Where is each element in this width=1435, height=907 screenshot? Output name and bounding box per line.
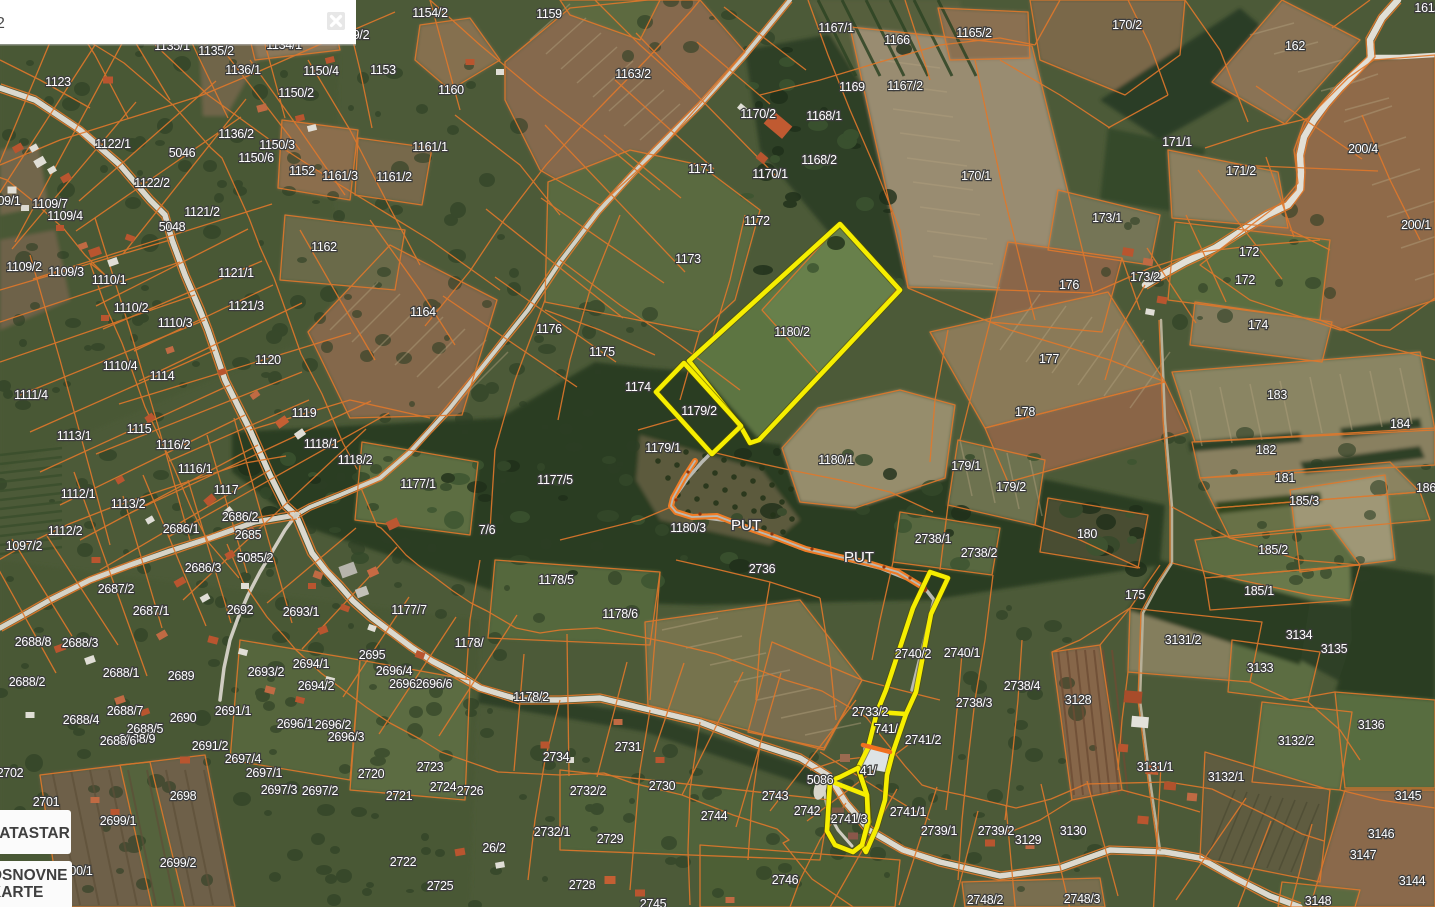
svg-text:1115: 1115 [127,422,152,436]
svg-text:1150/3: 1150/3 [259,138,295,152]
svg-text:1122/2: 1122/2 [134,176,170,190]
svg-text:172: 172 [1239,245,1259,259]
svg-text:3148: 3148 [1305,894,1332,907]
svg-text:2724: 2724 [430,780,457,794]
svg-text:1114: 1114 [150,369,175,383]
svg-text:2698: 2698 [170,789,197,803]
svg-text:2688/8: 2688/8 [15,635,52,649]
svg-text:170/1: 170/1 [961,169,991,183]
svg-text:1123: 1123 [45,75,71,89]
svg-text:2695: 2695 [359,648,386,662]
svg-text:2734: 2734 [543,750,570,764]
svg-text:2699/1: 2699/1 [100,814,137,828]
svg-text:1165/2: 1165/2 [956,26,992,40]
svg-text:09/1: 09/1 [0,194,21,208]
svg-text:2688/4: 2688/4 [63,713,100,727]
svg-text:2686/3: 2686/3 [185,561,222,575]
svg-text:1162: 1162 [311,240,337,254]
svg-text:2732/2: 2732/2 [570,784,607,798]
svg-text:2721: 2721 [386,789,413,803]
svg-text:1116/2: 1116/2 [156,438,191,452]
svg-text:184: 184 [1390,417,1410,431]
svg-text:171/2: 171/2 [1226,164,1256,178]
svg-text:1164: 1164 [410,305,436,319]
svg-text:2686/1: 2686/1 [163,522,200,536]
svg-text:180: 180 [1077,527,1097,541]
svg-text:2732/1: 2732/1 [534,825,571,839]
svg-text:2723: 2723 [417,760,444,774]
svg-text:KARTE: KARTE [0,884,43,901]
svg-text:182: 182 [1256,443,1276,457]
svg-text:1109/2: 1109/2 [6,260,42,274]
svg-text:2688/1: 2688/1 [103,666,140,680]
svg-text:1168/1: 1168/1 [806,109,842,123]
svg-text:3131/2: 3131/2 [1165,633,1202,647]
svg-text:1118/2: 1118/2 [338,453,373,467]
svg-text:2702: 2702 [0,766,24,780]
svg-text:1171: 1171 [688,162,714,176]
svg-text:1180/1: 1180/1 [818,453,854,467]
svg-text:1110/1: 1110/1 [92,273,127,287]
svg-text:1167/1: 1167/1 [818,21,854,35]
svg-text:171/1: 171/1 [1162,135,1192,149]
svg-text:1150/2: 1150/2 [278,86,314,100]
svg-text:2685: 2685 [235,528,262,542]
svg-text:2741/2: 2741/2 [905,733,942,747]
svg-text:179/1: 179/1 [951,459,981,473]
svg-text:5046: 5046 [169,146,196,160]
svg-text:2691/2: 2691/2 [192,739,229,753]
svg-text:1110/3: 1110/3 [158,316,193,330]
svg-text:OSNOVNE: OSNOVNE [0,867,68,884]
svg-text:2745: 2745 [640,897,667,907]
svg-text:2738/4: 2738/4 [1004,679,1041,693]
svg-text:2725: 2725 [427,879,454,893]
svg-text:2696/4: 2696/4 [376,664,413,678]
svg-text:1175: 1175 [589,345,615,359]
svg-text:1172: 1172 [744,214,770,228]
svg-text:2746: 2746 [772,873,799,887]
svg-text:2688/3: 2688/3 [62,636,99,650]
svg-text:2701: 2701 [33,795,60,809]
svg-text:1153: 1153 [370,63,396,77]
svg-text:179/2: 179/2 [996,480,1026,494]
svg-text:2692: 2692 [227,603,254,617]
svg-text:2697/1: 2697/1 [246,766,283,780]
svg-text:26/2: 26/2 [482,841,505,855]
svg-text:1178/6: 1178/6 [602,607,638,621]
svg-text:1169: 1169 [839,80,865,94]
svg-text:2690: 2690 [170,711,197,725]
svg-text:1176: 1176 [536,322,562,336]
svg-text:1178/: 1178/ [455,636,485,650]
svg-text:1116/1: 1116/1 [178,462,213,476]
svg-text:2742: 2742 [794,804,821,818]
svg-text:176: 176 [1059,278,1079,292]
svg-text:185/3: 185/3 [1289,494,1319,508]
svg-text:1174: 1174 [625,380,651,394]
svg-text:5085/2: 5085/2 [237,551,274,565]
svg-text:173/1: 173/1 [1092,211,1122,225]
svg-text:3136: 3136 [1358,718,1385,732]
svg-text:1097/2: 1097/2 [6,539,43,553]
svg-text:2691/1: 2691/1 [215,704,252,718]
svg-text:2738/2: 2738/2 [961,546,998,560]
svg-text:5048: 5048 [159,220,186,234]
svg-text:3131/1: 3131/1 [1137,760,1174,774]
svg-text:3132/2: 3132/2 [1278,734,1315,748]
svg-text:2699/2: 2699/2 [160,856,197,870]
svg-text:3130: 3130 [1060,824,1087,838]
svg-text:1112/1: 1112/1 [61,487,96,501]
svg-text:5086: 5086 [807,773,834,787]
svg-text:172: 172 [1235,273,1255,287]
svg-text:2728: 2728 [569,878,596,892]
svg-text:2697/4: 2697/4 [225,752,262,766]
svg-text:174: 174 [1248,318,1268,332]
svg-text:1170/1: 1170/1 [752,167,788,181]
svg-text:2688/7: 2688/7 [107,704,144,718]
svg-text:178: 178 [1015,405,1035,419]
svg-text:1109/4: 1109/4 [47,209,83,223]
svg-text:1121/3: 1121/3 [228,299,264,313]
svg-text:1179/2: 1179/2 [681,404,717,418]
svg-text:2743: 2743 [762,789,789,803]
svg-text:1173: 1173 [675,252,701,266]
svg-text:2697/2: 2697/2 [302,784,339,798]
svg-text:2733/2: 2733/2 [852,705,889,719]
svg-text:1168/2: 1168/2 [801,153,837,167]
svg-text:2689: 2689 [168,669,195,683]
svg-text:2729: 2729 [597,832,624,846]
svg-text:186: 186 [1416,481,1435,495]
svg-text:1113/1: 1113/1 [57,429,92,443]
svg-text:1161/3: 1161/3 [322,169,358,183]
svg-text:1121/1: 1121/1 [218,266,254,280]
svg-text:2722: 2722 [390,855,417,869]
svg-text:1161/1: 1161/1 [412,140,448,154]
svg-text:183: 183 [1267,388,1287,402]
svg-text:1178/5: 1178/5 [538,573,574,587]
svg-text:1159: 1159 [536,7,562,21]
svg-text:1152: 1152 [289,164,315,178]
svg-text:2744: 2744 [701,809,728,823]
svg-text:1122/1: 1122/1 [95,137,131,151]
svg-text:1161/2: 1161/2 [376,170,412,184]
svg-text:1179/1: 1179/1 [645,441,681,455]
svg-text:2726: 2726 [457,784,484,798]
svg-text:2738/1: 2738/1 [915,532,952,546]
svg-text:2696/3: 2696/3 [328,730,365,744]
svg-text:741/: 741/ [874,722,898,736]
svg-text:1163/2: 1163/2 [615,67,651,81]
svg-text:PUT: PUT [731,517,761,534]
svg-text:2738/3: 2738/3 [956,696,993,710]
svg-text:2688/6: 2688/6 [100,734,137,748]
svg-text:1112/2: 1112/2 [48,524,83,538]
svg-text:2696/6: 2696/6 [416,677,453,691]
svg-text:2694/2: 2694/2 [298,679,335,693]
svg-text:1150/6: 1150/6 [238,151,274,165]
svg-text:185/1: 185/1 [1244,584,1274,598]
svg-text:200/4: 200/4 [1348,142,1378,156]
svg-text:2687/2: 2687/2 [98,582,135,596]
svg-text:200/1: 200/1 [1401,218,1431,232]
svg-text:170/2: 170/2 [1112,18,1142,32]
svg-text:3129: 3129 [1015,833,1042,847]
svg-text:1180/3: 1180/3 [670,521,706,535]
svg-text:1136/1: 1136/1 [225,63,261,77]
svg-text:1117: 1117 [214,483,239,497]
svg-text:41/: 41/ [860,764,877,778]
svg-text:1160: 1160 [438,83,464,97]
svg-text:185/2: 185/2 [1258,543,1288,557]
svg-text:2686/2: 2686/2 [222,510,259,524]
svg-text:1110/4: 1110/4 [103,359,138,373]
svg-text:181: 181 [1275,471,1295,485]
svg-text:162: 162 [1285,39,1305,53]
svg-text:2741/3: 2741/3 [831,812,868,826]
svg-text:1109/3: 1109/3 [48,265,84,279]
svg-text:1167/2: 1167/2 [887,79,923,93]
svg-text:2720: 2720 [358,767,385,781]
svg-text:2688/2: 2688/2 [9,675,46,689]
svg-text:2693/2: 2693/2 [248,665,285,679]
svg-text:1178/2: 1178/2 [513,690,549,704]
svg-text:1177/1: 1177/1 [400,477,436,491]
svg-text:3128: 3128 [1065,693,1092,707]
svg-text:2739/2: 2739/2 [978,824,1015,838]
svg-text:3146: 3146 [1368,827,1395,841]
svg-text:2731: 2731 [615,740,642,754]
svg-text:2740/1: 2740/1 [944,646,981,660]
svg-text:2687/1: 2687/1 [133,604,170,618]
svg-text:1180/2: 1180/2 [774,325,810,339]
svg-text:161/: 161/ [1414,1,1435,15]
svg-text:00/1: 00/1 [69,864,92,878]
svg-text:2730: 2730 [649,779,676,793]
svg-text:1119: 1119 [292,406,317,420]
svg-text:2740/2: 2740/2 [895,647,932,661]
svg-text:1170/2: 1170/2 [740,107,776,121]
svg-text:1113/2: 1113/2 [111,497,146,511]
svg-text:2736: 2736 [749,562,776,576]
svg-text:3147: 3147 [1350,848,1377,862]
svg-text:7/6: 7/6 [479,523,496,537]
svg-text:1166: 1166 [884,33,910,47]
svg-text:2694/1: 2694/1 [293,657,330,671]
svg-text:3144: 3144 [1399,874,1426,888]
svg-text:175: 175 [1125,588,1145,602]
svg-text:1121/2: 1121/2 [184,205,220,219]
svg-text:3133: 3133 [1247,661,1274,675]
svg-text:2697/3: 2697/3 [261,783,298,797]
svg-text:3145: 3145 [1395,789,1422,803]
svg-text:2693/1: 2693/1 [283,605,320,619]
svg-text:1150/4: 1150/4 [303,64,339,78]
svg-text:1111/4: 1111/4 [14,388,48,402]
svg-text:2741/1: 2741/1 [890,805,927,819]
svg-text:PUT: PUT [844,549,874,566]
svg-text:1120: 1120 [255,353,281,367]
svg-text:2748/3: 2748/3 [1064,892,1101,906]
svg-text:2696/1: 2696/1 [277,717,314,731]
svg-text:2739/1: 2739/1 [921,824,958,838]
svg-text:1118/1: 1118/1 [304,437,339,451]
svg-text:1154/2: 1154/2 [412,6,448,20]
svg-text:173/2: 173/2 [1130,270,1160,284]
svg-text:2748/2: 2748/2 [967,893,1004,907]
svg-text:1177/5: 1177/5 [537,473,573,487]
svg-text:1135/2: 1135/2 [198,44,234,58]
svg-text:177: 177 [1039,352,1059,366]
svg-text:1136/2: 1136/2 [218,127,254,141]
svg-text:2: 2 [0,15,5,32]
svg-text:KATASTAR: KATASTAR [0,825,70,842]
svg-text:3132/1: 3132/1 [1208,770,1245,784]
svg-text:3135: 3135 [1321,642,1348,656]
svg-text:3134: 3134 [1286,628,1313,642]
svg-text:1110/2: 1110/2 [114,301,149,315]
svg-text:1177/7: 1177/7 [391,603,427,617]
